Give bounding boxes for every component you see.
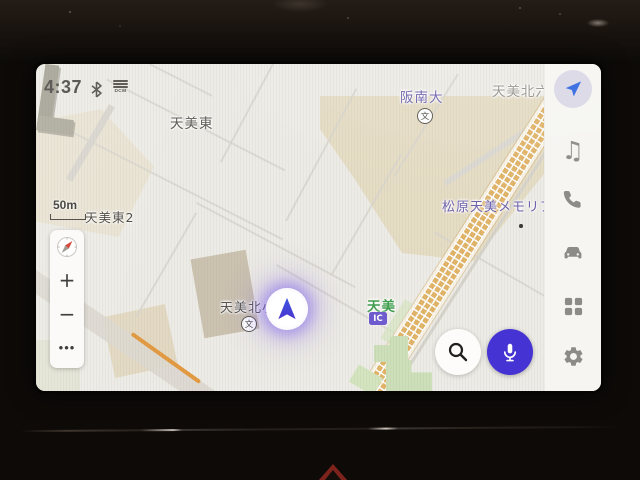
map-park [374, 336, 408, 362]
dashboard-top [0, 0, 640, 62]
clock: 4:37 [44, 77, 82, 98]
settings-gear-icon [562, 345, 585, 368]
app-sidebar: ♫ [544, 64, 601, 391]
map-scale-label: 50m [53, 198, 77, 212]
map-street [149, 64, 212, 96]
navigation-arrow-icon [563, 79, 583, 99]
microphone-icon [499, 341, 521, 364]
sidebar-item-phone[interactable] [545, 188, 601, 212]
map-park [386, 360, 432, 391]
voice-assistant-button[interactable] [487, 329, 533, 375]
map-street [135, 212, 196, 317]
magnifier-icon [447, 341, 469, 363]
map-street [220, 64, 282, 162]
zoom-out-button[interactable]: − [50, 297, 84, 331]
hazard-warning-button[interactable] [318, 464, 348, 480]
map-scale-bar [50, 214, 86, 220]
school-map-icon: 文 [417, 108, 433, 124]
more-options-button[interactable]: ••• [50, 331, 84, 369]
search-button[interactable] [435, 329, 481, 375]
zoom-in-button[interactable]: + [50, 264, 84, 298]
map-label-district-west: 天美東 [170, 112, 214, 132]
position-arrow-icon [275, 296, 299, 323]
compass-icon [56, 236, 78, 258]
sidebar-item-apps[interactable] [545, 296, 601, 316]
map-label-memorial: 松原天美メモリア [442, 196, 554, 215]
compass-button[interactable] [50, 230, 84, 264]
car-dashboard-photo: 天美北六 阪南大 文 天美東 天美東2 松原天美メモリア 天美北小 文 天美 I… [0, 0, 640, 480]
bluetooth-icon [90, 81, 103, 103]
phone-icon [562, 189, 584, 211]
sidebar-item-music[interactable]: ♫ [545, 134, 601, 166]
map-label-district-northeast: 天美北六 [492, 80, 550, 100]
dcm-bar [113, 86, 128, 88]
car-icon [561, 241, 585, 265]
infotainment-screen: 天美北六 阪南大 文 天美東 天美東2 松原天美メモリア 天美北小 文 天美 I… [36, 64, 601, 391]
sidebar-item-navigation[interactable] [554, 70, 592, 108]
map-building-wing [36, 115, 74, 135]
map-label-district-west-block: 天美東2 [85, 207, 134, 226]
map-label-university: 阪南大 [400, 86, 444, 106]
map-control-panel: + − ••• [50, 230, 84, 368]
school-map-icon: 文 [241, 316, 257, 332]
sidebar-item-vehicle[interactable] [545, 240, 601, 266]
dcm-bar [113, 83, 128, 85]
map-poi-dot [519, 224, 523, 228]
dcm-label: DCM [113, 89, 128, 94]
vehicle-position-marker [266, 288, 308, 330]
sidebar-item-settings[interactable] [545, 344, 601, 368]
dcm-bar [113, 80, 128, 82]
apps-grid-icon [564, 297, 583, 316]
dcm-signal-icon: DCM [113, 80, 128, 94]
interchange-badge: IC [369, 312, 387, 325]
dashboard-trim-line [20, 426, 620, 432]
